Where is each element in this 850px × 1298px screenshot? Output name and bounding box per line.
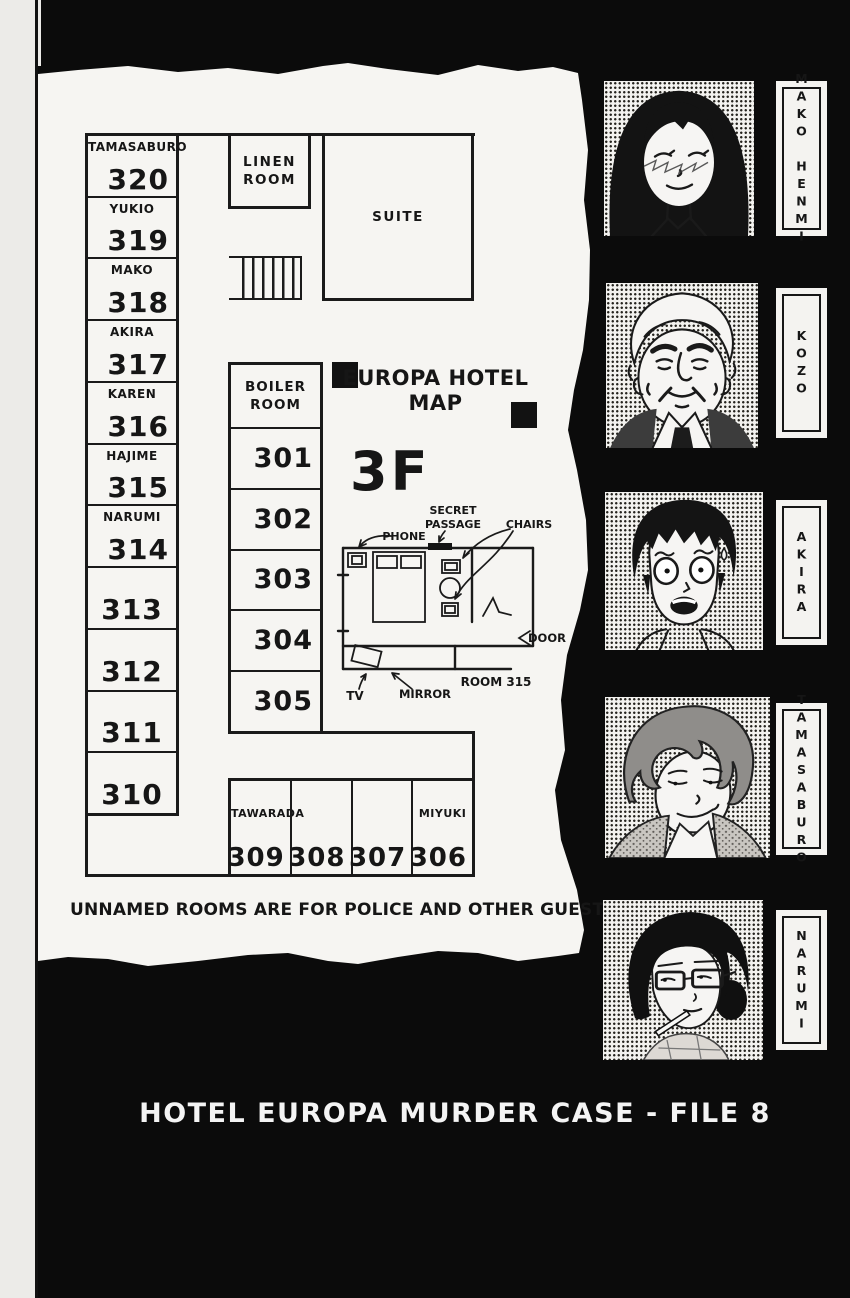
room-312: 312 bbox=[88, 628, 176, 690]
boiler-room: BOILER ROOM bbox=[231, 365, 320, 427]
room-307: 307 bbox=[351, 781, 412, 874]
boiler-room-label: BOILER ROOM bbox=[245, 378, 307, 414]
char-name: MAKO HENMI bbox=[794, 71, 809, 246]
room-number: 316 bbox=[108, 410, 169, 443]
room-number: 319 bbox=[108, 224, 169, 257]
portrait-mako-henmi bbox=[604, 81, 754, 236]
map-note: UNNAMED ROOMS ARE FOR POLICE AND OTHER G… bbox=[70, 900, 550, 920]
room-guest-name: MAKO bbox=[88, 263, 176, 277]
char-label-frame: KOZO bbox=[782, 294, 821, 432]
secret-passage-label-line1: SECRET bbox=[430, 504, 477, 517]
map-title-line2: MAP bbox=[338, 391, 533, 416]
mirror-label: MIRROR bbox=[399, 687, 451, 701]
room-315-label: ROOM 315 bbox=[461, 675, 532, 689]
room-number: 317 bbox=[108, 348, 169, 381]
room-number: 304 bbox=[231, 611, 320, 670]
room-number: 315 bbox=[108, 471, 169, 504]
char-label-frame: MAKO HENMI bbox=[782, 87, 821, 230]
portrait-tamasaburo bbox=[605, 697, 770, 858]
narumi-face-drawing bbox=[603, 900, 763, 1060]
manga-page: TAMASABURO 320 YUKIO 319 MAKO 318 AKIRA … bbox=[0, 0, 850, 1298]
portrait-akira bbox=[605, 492, 763, 650]
room-number: 303 bbox=[231, 551, 320, 610]
char-label-akira: AKIRA bbox=[776, 500, 827, 645]
room-318: MAKO 318 bbox=[88, 257, 176, 319]
portrait-narumi bbox=[603, 900, 763, 1060]
chair-1-seat bbox=[445, 563, 457, 570]
room-guest-name: AKIRA bbox=[88, 325, 176, 339]
char-name: KOZO bbox=[794, 328, 809, 398]
room-guest-name: KAREN bbox=[88, 387, 176, 401]
room-302: 302 bbox=[231, 488, 320, 549]
char-label-frame: NARUMI bbox=[782, 916, 821, 1044]
room-316: KAREN 316 bbox=[88, 381, 176, 443]
page-frame-line bbox=[35, 0, 38, 1298]
akira-face-drawing bbox=[605, 492, 763, 650]
char-label-kozo: KOZO bbox=[776, 288, 827, 438]
lounge-chair bbox=[483, 598, 511, 616]
room-guest-name: MIYUKI bbox=[413, 807, 472, 820]
char-label-mako-henmi: MAKO HENMI bbox=[776, 81, 827, 236]
map-title: EUROPA HOTEL MAP bbox=[338, 366, 533, 416]
floor-label: 3F bbox=[350, 440, 430, 503]
room-number: 301 bbox=[231, 429, 320, 488]
phone-label: PHONE bbox=[382, 530, 425, 543]
phone bbox=[352, 556, 362, 564]
suite-room: SUITE bbox=[322, 133, 474, 301]
chair-2-seat bbox=[445, 606, 455, 613]
room-number: 308 bbox=[288, 843, 345, 873]
map-title-line1: EUROPA HOTEL bbox=[338, 366, 533, 391]
room-guest-name: NARUMI bbox=[88, 510, 176, 524]
room-guest-name: TAWARADA bbox=[231, 807, 290, 820]
kozo-face-drawing bbox=[606, 283, 758, 448]
middle-room-column: BOILER ROOM 301 302 303 304 305 bbox=[228, 362, 323, 734]
char-label-narumi: NARUMI bbox=[776, 910, 827, 1050]
chairs-arrow-2 bbox=[455, 531, 513, 599]
room-306: MIYUKI 306 bbox=[411, 781, 472, 874]
room-number: 320 bbox=[108, 163, 169, 196]
secret-passage-label-line2: PASSAGE bbox=[425, 518, 481, 531]
mako-henmi-face-drawing bbox=[604, 81, 754, 236]
room-308: 308 bbox=[290, 781, 351, 874]
room-311: 311 bbox=[88, 690, 176, 752]
room-309: TAWARADA 309 bbox=[231, 781, 290, 874]
tamasaburo-face-drawing bbox=[605, 697, 770, 858]
bed-pillow bbox=[401, 556, 421, 568]
chairs-arrow-1 bbox=[463, 529, 510, 558]
room-number: 306 bbox=[410, 843, 467, 873]
chairs-label: CHAIRS bbox=[506, 518, 552, 531]
room-305: 305 bbox=[231, 670, 320, 731]
paper-sliver bbox=[38, 0, 41, 66]
secret-passage-arrow bbox=[439, 531, 445, 542]
wall-corridor-top bbox=[322, 731, 475, 734]
room-315-detail-diagram: PHONE SECRET PASSAGE CHAIRS DOOR ROOM 31… bbox=[333, 498, 568, 713]
char-name: TAMASABURO bbox=[794, 692, 809, 867]
room-number: 310 bbox=[88, 778, 176, 811]
suite-label: SUITE bbox=[372, 208, 424, 227]
portrait-kozo bbox=[606, 283, 758, 448]
room-number: 318 bbox=[108, 286, 169, 319]
bed bbox=[373, 552, 425, 622]
room-301: 301 bbox=[231, 427, 320, 488]
bed-pillow bbox=[377, 556, 397, 568]
room-guest-name: YUKIO bbox=[88, 202, 176, 216]
room-319: YUKIO 319 bbox=[88, 196, 176, 258]
room-number: 314 bbox=[108, 533, 169, 566]
room-317: AKIRA 317 bbox=[88, 319, 176, 381]
door-label: DOOR bbox=[528, 631, 566, 645]
tv bbox=[351, 645, 381, 667]
room-310: 310 bbox=[88, 751, 176, 813]
room-320: TAMASABURO 320 bbox=[88, 136, 176, 196]
room-315: HAJIME 315 bbox=[88, 443, 176, 505]
wall-left-extension bbox=[85, 813, 88, 877]
room-guest-name: TAMASABURO bbox=[88, 140, 176, 154]
left-room-column: TAMASABURO 320 YUKIO 319 MAKO 318 AKIRA … bbox=[85, 133, 179, 816]
room-313: 313 bbox=[88, 566, 176, 628]
room-314: NARUMI 314 bbox=[88, 504, 176, 566]
room-number: 302 bbox=[231, 490, 320, 549]
room-315-walls bbox=[338, 548, 533, 669]
char-label-frame: AKIRA bbox=[782, 506, 821, 639]
secret-passage-marker bbox=[428, 543, 452, 550]
phone-table bbox=[348, 553, 366, 567]
room-number: 311 bbox=[88, 716, 176, 749]
room-guest-name: HAJIME bbox=[88, 449, 176, 463]
room-number: 309 bbox=[227, 843, 284, 873]
staircase bbox=[229, 256, 302, 300]
room-303: 303 bbox=[231, 549, 320, 610]
tv-label: TV bbox=[346, 689, 364, 703]
room-number: 307 bbox=[349, 843, 406, 873]
char-name: AKIRA bbox=[794, 529, 809, 617]
tv-arrow bbox=[359, 674, 366, 689]
staircase-steps bbox=[242, 258, 302, 298]
char-label-tamasaburo: TAMASABURO bbox=[776, 703, 827, 855]
bottom-room-row: TAWARADA 309 308 307 MIYUKI 306 bbox=[228, 778, 475, 877]
room-number: 312 bbox=[88, 655, 176, 688]
room-number: 313 bbox=[88, 593, 176, 626]
room-304: 304 bbox=[231, 609, 320, 670]
room-number: 305 bbox=[231, 672, 320, 731]
linen-room-label: LINEN ROOM bbox=[239, 153, 301, 189]
chapter-title: HOTEL EUROPA MURDER CASE - FILE 8 bbox=[60, 1098, 850, 1129]
char-name: NARUMI bbox=[794, 928, 809, 1033]
char-label-frame: TAMASABURO bbox=[782, 709, 821, 849]
linen-room: LINEN ROOM bbox=[228, 133, 311, 209]
